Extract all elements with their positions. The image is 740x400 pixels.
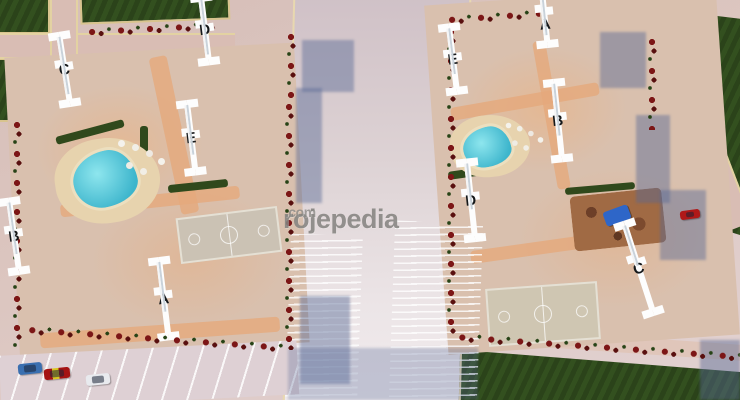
grass-top-left-a xyxy=(0,0,50,34)
court-circle xyxy=(187,233,200,246)
treeline xyxy=(645,35,659,130)
building-shadow xyxy=(600,32,646,88)
building-shadow xyxy=(660,190,706,260)
parking-shadow xyxy=(288,348,478,400)
building-shadow xyxy=(302,40,354,92)
court-circle xyxy=(576,305,589,318)
watermark-suffix: .com xyxy=(285,204,316,220)
building-shadow xyxy=(296,88,322,203)
court-circle xyxy=(497,310,510,323)
court-circle xyxy=(257,224,270,237)
umbrellas xyxy=(506,123,512,129)
treeline xyxy=(284,30,298,100)
umbrellas xyxy=(118,140,125,147)
aerial-render: C D E B A A xyxy=(0,0,740,400)
